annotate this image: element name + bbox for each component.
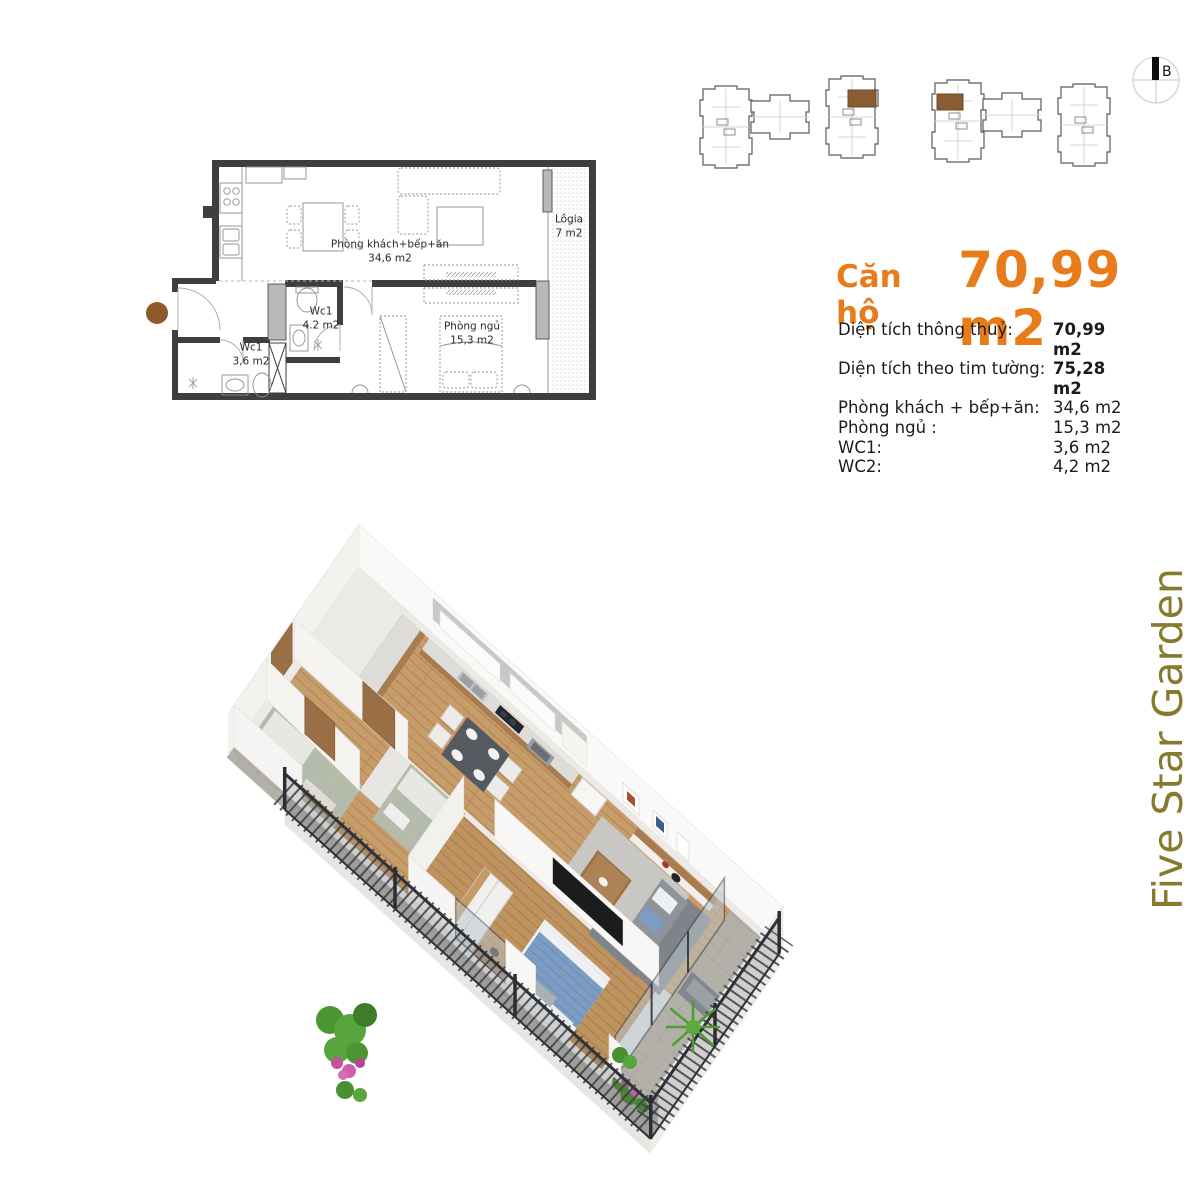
- project-watermark: Five Star Garden: [1144, 506, 1192, 910]
- render-3d: [225, 515, 800, 1170]
- room-label-wc2: Wc13,6 m2: [233, 341, 270, 368]
- compass-label: B: [1162, 64, 1172, 80]
- spec-row: WC1: 3,6 m2: [838, 438, 1138, 458]
- loggia-area: [552, 167, 589, 393]
- highlighted-unit: [937, 94, 963, 110]
- compass-icon: B: [1126, 48, 1190, 112]
- spec-row: Diện tích thông thuỷ: 70,99 m2: [838, 320, 1138, 359]
- spec-row: Phòng ngủ : 15,3 m2: [838, 418, 1138, 438]
- highlighted-unit: [848, 90, 876, 107]
- floorplan-2d: [85, 148, 605, 410]
- room-label-loggia: Lôgia7 m2: [555, 213, 583, 240]
- building-plate-2: [932, 80, 1110, 166]
- entrance-marker-dot: [146, 302, 168, 324]
- room-label-bedroom: Phòng ngủ15,3 m2: [444, 320, 500, 347]
- spec-row: WC2: 4,2 m2: [838, 457, 1138, 477]
- building-plate-1: [700, 76, 878, 168]
- spec-table: Diện tích thông thuỷ: 70,99 m2 Diện tích…: [838, 320, 1138, 477]
- page: Phòng khách+bếp+ăn34,6 m2 Phòng ngủ15,3 …: [0, 0, 1200, 1200]
- spec-row: Phòng khách + bếp+ăn: 34,6 m2: [838, 398, 1138, 418]
- spec-row: Diện tích theo tim tường: 75,28 m2: [838, 359, 1138, 398]
- north-pointer: [1152, 57, 1159, 80]
- room-label-living: Phòng khách+bếp+ăn34,6 m2: [331, 238, 449, 265]
- site-plan-buildings: [690, 68, 1130, 180]
- room-label-wc1: Wc14.2 m2: [303, 305, 340, 332]
